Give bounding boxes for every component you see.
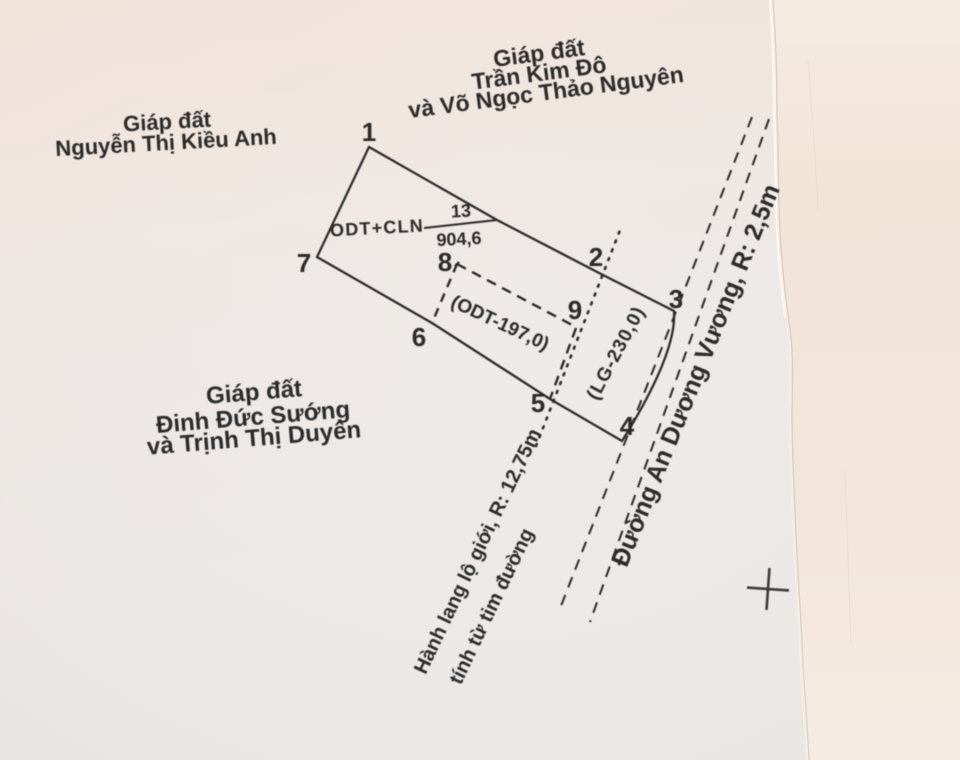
svg-text:2: 2: [589, 242, 603, 272]
svg-text:13: 13: [450, 200, 471, 221]
svg-text:8: 8: [438, 247, 452, 277]
svg-text:3: 3: [669, 284, 683, 314]
svg-text:7: 7: [297, 248, 311, 278]
svg-text:1: 1: [362, 117, 376, 147]
svg-text:5: 5: [531, 388, 545, 418]
svg-text:9: 9: [568, 295, 582, 325]
svg-text:4: 4: [620, 411, 635, 441]
svg-text:6: 6: [412, 322, 426, 352]
